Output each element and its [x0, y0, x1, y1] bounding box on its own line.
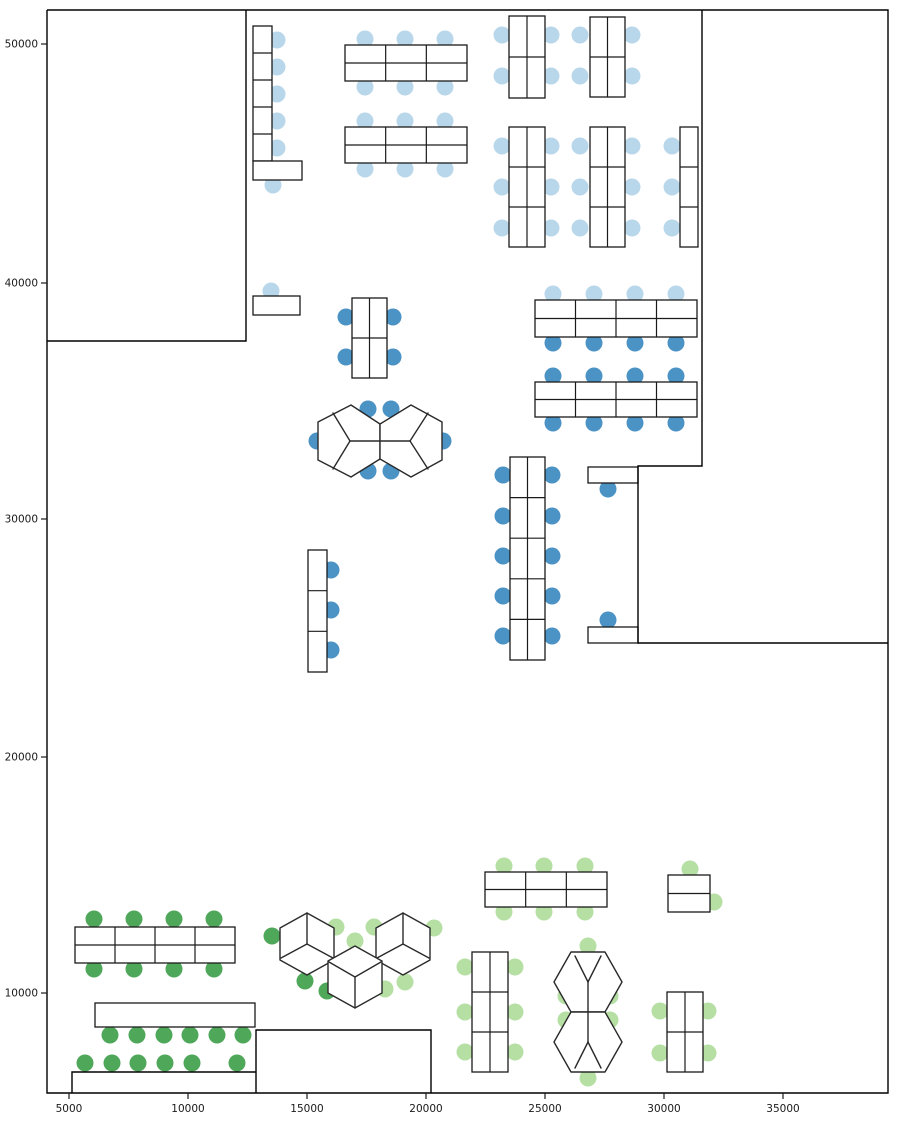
y-tick-label: 50000 — [5, 39, 38, 51]
seat-dot — [507, 1004, 524, 1021]
seat-dot — [544, 508, 561, 525]
seat-dot — [104, 1055, 121, 1072]
hex-pod — [280, 913, 334, 975]
seat-dot — [495, 508, 512, 525]
seat-dot — [126, 911, 143, 928]
desk-outline — [588, 467, 638, 483]
seat-dot — [495, 548, 512, 565]
seat-dot — [572, 68, 589, 85]
seat-dot — [182, 1027, 199, 1044]
seat-dot — [544, 588, 561, 605]
desk-block — [75, 927, 235, 963]
desk-outline — [253, 296, 300, 315]
floorplan-chart: 5000100001500020000250003000035000500004… — [0, 0, 897, 1122]
seat-dot — [507, 959, 524, 976]
x-tick-label: 5000 — [56, 1103, 83, 1115]
seat-dot — [624, 138, 641, 155]
seat-dot — [544, 467, 561, 484]
hex-pod — [328, 946, 382, 1008]
seat-dot — [652, 1003, 669, 1020]
desk-block — [485, 872, 607, 907]
seat-dot — [572, 220, 589, 237]
seat-dot — [624, 27, 641, 44]
hex-pods-layer — [280, 405, 622, 1072]
seat-dot — [572, 138, 589, 155]
desk-outline — [588, 627, 638, 643]
desk-block — [253, 161, 302, 180]
seat-dot — [457, 1004, 474, 1021]
desk-block — [345, 45, 467, 81]
seat-dot — [495, 628, 512, 645]
seat-dot — [664, 138, 681, 155]
x-tick-label: 25000 — [528, 1103, 561, 1115]
desk-outline — [253, 26, 272, 161]
hex-pod — [376, 913, 430, 975]
seat-dot — [495, 588, 512, 605]
seat-dot — [624, 179, 641, 196]
seat-dot — [494, 138, 511, 155]
desk-block — [509, 16, 545, 98]
x-tick-label: 10000 — [171, 1103, 204, 1115]
desk-block — [308, 550, 327, 672]
desk-outline — [680, 127, 698, 247]
seat-dot — [494, 68, 511, 85]
floorplan-figure: 5000100001500020000250003000035000500004… — [0, 0, 897, 1122]
desk-block — [590, 17, 625, 97]
seat-dot — [494, 220, 511, 237]
x-tick-label: 35000 — [766, 1103, 799, 1115]
desk-block — [680, 127, 698, 247]
desk-block — [345, 127, 467, 163]
seat-dot — [129, 1027, 146, 1044]
desk-block — [668, 875, 710, 912]
desk-block — [253, 26, 272, 161]
desk-block — [590, 127, 625, 247]
seat-dot — [297, 973, 314, 990]
seat-dot — [206, 911, 223, 928]
wall — [72, 1072, 256, 1093]
seat-dot — [624, 68, 641, 85]
seat-dot — [184, 1055, 201, 1072]
seat-dot — [600, 612, 617, 629]
seat-dot — [209, 1027, 226, 1044]
desk-block — [535, 382, 697, 417]
wall — [47, 10, 246, 341]
seat-dot — [166, 911, 183, 928]
desk-block — [352, 298, 387, 378]
x-tick-label: 15000 — [290, 1103, 323, 1115]
seat-dot — [156, 1027, 173, 1044]
y-tick-label: 40000 — [5, 278, 38, 290]
desk-block — [95, 1003, 255, 1027]
seat-dot — [544, 548, 561, 565]
desk-outline — [308, 550, 327, 672]
seat-dot — [494, 27, 511, 44]
seat-dot — [664, 179, 681, 196]
seat-dot — [86, 911, 103, 928]
seat-dot — [235, 1027, 252, 1044]
seat-dot — [102, 1027, 119, 1044]
seat-dot — [397, 974, 414, 991]
desk-outline — [95, 1003, 255, 1027]
x-tick-label: 20000 — [409, 1103, 442, 1115]
seat-dot — [457, 1044, 474, 1061]
seat-dot — [572, 27, 589, 44]
y-tick-label: 10000 — [5, 988, 38, 1000]
desk-block — [509, 127, 545, 247]
y-tick-label: 30000 — [5, 514, 38, 526]
seat-dot — [495, 467, 512, 484]
desk-block — [535, 300, 697, 337]
x-tick-label: 30000 — [647, 1103, 680, 1115]
seat-dot — [572, 179, 589, 196]
wall — [256, 1030, 431, 1093]
desk-block — [253, 296, 300, 315]
desk-block — [472, 952, 508, 1072]
seat-dot — [494, 179, 511, 196]
desk-outline — [253, 161, 302, 180]
seat-dot — [229, 1055, 246, 1072]
y-tick-label: 20000 — [5, 752, 38, 764]
desk-block — [588, 467, 638, 483]
seat-dot — [664, 220, 681, 237]
seat-dot — [507, 1044, 524, 1061]
desk-block — [510, 457, 545, 660]
seat-dot — [457, 959, 474, 976]
seat-dot — [544, 628, 561, 645]
desk-block — [588, 627, 638, 643]
seat-dot — [130, 1055, 147, 1072]
desk-block — [667, 992, 703, 1072]
seat-dot — [652, 1045, 669, 1062]
seat-dot — [264, 928, 281, 945]
seat-dot — [157, 1055, 174, 1072]
seat-dot — [624, 220, 641, 237]
seat-dot — [77, 1055, 94, 1072]
